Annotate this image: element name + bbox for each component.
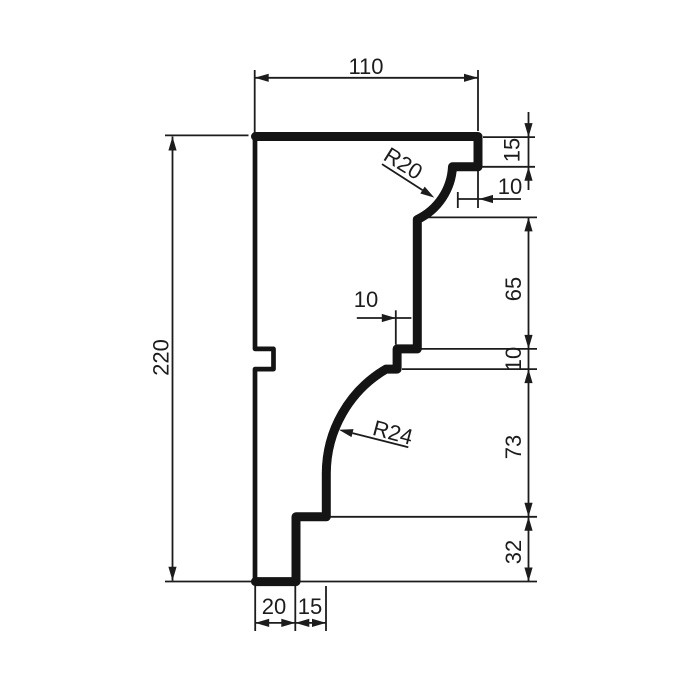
svg-text:15: 15 <box>500 138 525 162</box>
svg-text:110: 110 <box>348 54 383 79</box>
svg-text:220: 220 <box>149 339 174 376</box>
svg-text:65: 65 <box>501 277 526 301</box>
svg-text:20: 20 <box>262 594 286 619</box>
svg-text:10: 10 <box>354 287 378 312</box>
svg-text:32: 32 <box>501 540 526 564</box>
svg-text:15: 15 <box>298 594 322 619</box>
svg-text:10: 10 <box>501 347 526 371</box>
svg-text:73: 73 <box>501 435 526 459</box>
svg-text:10: 10 <box>498 174 522 199</box>
svg-text:R24: R24 <box>370 415 415 450</box>
